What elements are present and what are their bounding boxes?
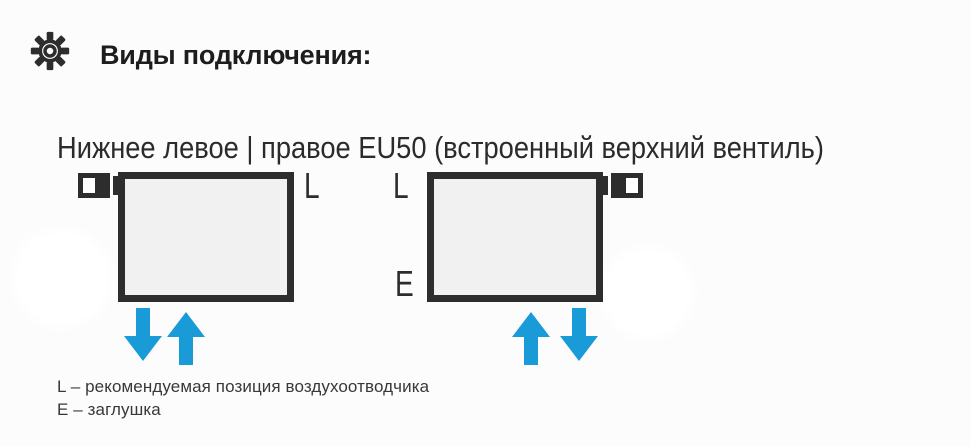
air-vent-marker-left: L <box>304 168 320 204</box>
valve-body <box>611 173 621 198</box>
air-vent-marker-right: L <box>393 168 409 204</box>
valve-icon-left <box>78 173 120 198</box>
connection-types-infographic: Виды подключения: Нижнее левое | правое … <box>0 0 970 446</box>
arrow-up-icon <box>512 312 550 365</box>
background-blob-right <box>600 246 694 340</box>
arrow-down-icon <box>560 308 598 361</box>
background-blob-left <box>12 228 112 328</box>
radiator-left <box>118 172 294 302</box>
legend-item-air-vent: L – рекомендуемая позиция воздухоотводчи… <box>57 375 429 398</box>
arrow-down-icon <box>124 308 162 361</box>
legend: L – рекомендуемая позиция воздухоотводчи… <box>57 375 429 421</box>
gear-icon <box>30 31 70 71</box>
radiator-right <box>427 172 603 302</box>
page-title: Виды подключения: <box>100 40 371 71</box>
valve-nipple <box>601 176 608 195</box>
connection-subtitle: Нижнее левое | правое EU50 (встроенный в… <box>57 130 824 166</box>
legend-item-plug: E – заглушка <box>57 398 429 421</box>
arrow-up-icon <box>167 312 205 365</box>
valve-body <box>100 173 110 198</box>
valve-cap <box>78 173 100 198</box>
plug-marker-right: E <box>395 266 414 302</box>
valve-icon-right <box>601 173 643 198</box>
valve-cap <box>621 173 643 198</box>
